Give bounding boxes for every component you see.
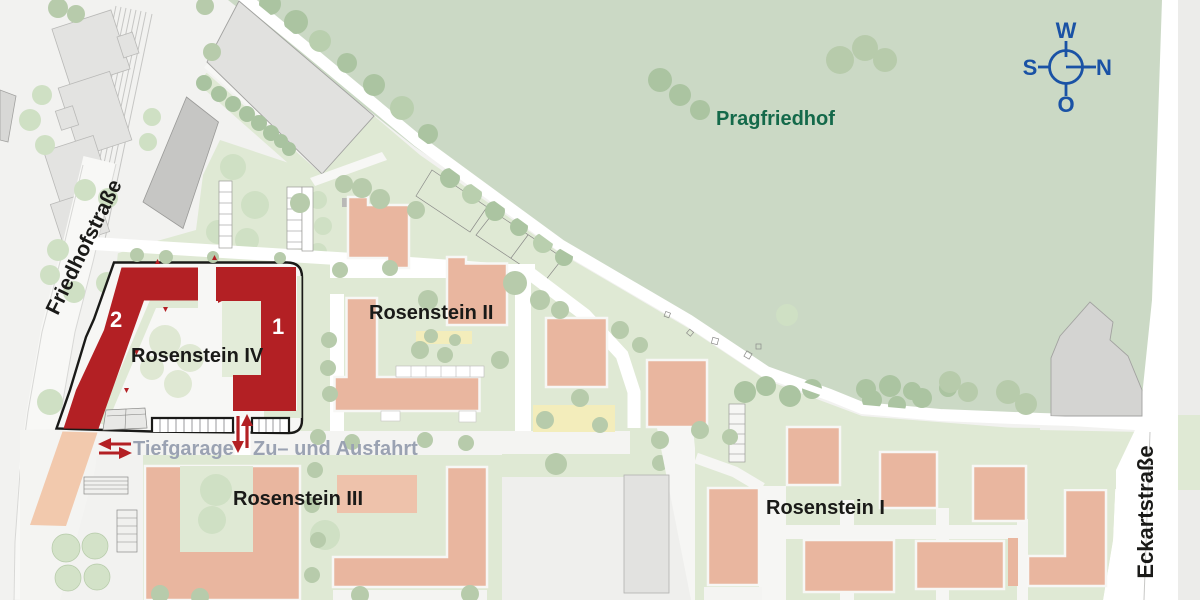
svg-text:1: 1 — [272, 314, 284, 339]
svg-text:Zu– und Ausfahrt: Zu– und Ausfahrt — [253, 438, 418, 460]
svg-text:W: W — [1056, 18, 1077, 43]
svg-text:2: 2 — [110, 307, 122, 332]
svg-text:Rosenstein IV: Rosenstein IV — [131, 345, 264, 367]
svg-text:Rosenstein I: Rosenstein I — [766, 497, 885, 519]
svg-text:Rosenstein II: Rosenstein II — [369, 302, 493, 324]
svg-text:Pragfriedhof: Pragfriedhof — [716, 108, 835, 130]
svg-text:N: N — [1096, 55, 1112, 80]
svg-text:Eckartstraße: Eckartstraße — [1133, 445, 1158, 578]
svg-text:Tiefgarage: Tiefgarage — [133, 438, 234, 460]
svg-text:Rosenstein III: Rosenstein III — [233, 488, 363, 510]
svg-text:S: S — [1023, 55, 1038, 80]
svg-text:O: O — [1057, 92, 1074, 117]
